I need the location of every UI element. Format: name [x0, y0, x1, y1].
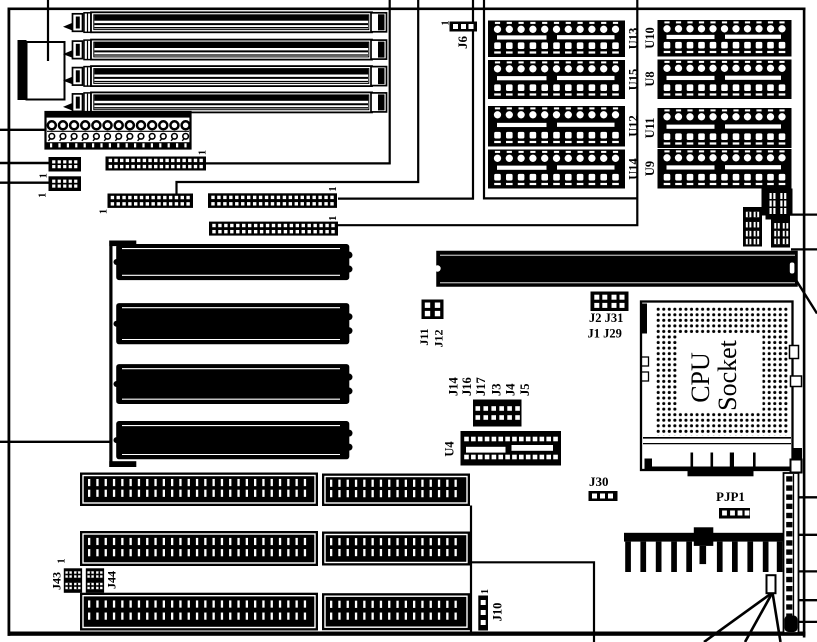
svg-text:J14: J14: [447, 377, 461, 397]
svg-text:1: 1: [38, 173, 49, 178]
svg-text:J12: J12: [432, 330, 446, 348]
svg-text:J43: J43: [50, 572, 64, 590]
svg-text:J30: J30: [589, 474, 609, 489]
svg-text:U8: U8: [643, 71, 657, 86]
svg-text:U9: U9: [643, 161, 657, 176]
svg-text:Socket: Socket: [713, 339, 742, 411]
svg-text:J1 J29: J1 J29: [588, 327, 622, 341]
svg-text:1: 1: [328, 216, 339, 221]
svg-text:U14: U14: [627, 157, 641, 179]
svg-text:J44: J44: [105, 571, 119, 589]
svg-text:U15: U15: [627, 69, 641, 91]
svg-text:U13: U13: [627, 28, 641, 50]
svg-text:J17: J17: [474, 377, 488, 396]
svg-text:U11: U11: [643, 118, 657, 139]
svg-text:J2 J31: J2 J31: [589, 311, 623, 325]
svg-text:J6: J6: [455, 36, 470, 50]
svg-text:U10: U10: [643, 27, 657, 49]
svg-text:J3: J3: [490, 384, 504, 397]
svg-text:U12: U12: [627, 115, 641, 137]
svg-text:1: 1: [441, 21, 452, 26]
svg-text:J16: J16: [460, 377, 474, 396]
svg-text:1: 1: [480, 589, 491, 594]
svg-text:U4: U4: [443, 441, 457, 457]
svg-text:J10: J10: [491, 603, 505, 622]
svg-text:J5: J5: [518, 384, 532, 397]
svg-text:CPU: CPU: [686, 352, 715, 403]
svg-text:1: 1: [328, 187, 339, 192]
svg-text:1: 1: [99, 209, 110, 214]
svg-text:J4: J4: [504, 383, 518, 396]
svg-text:1: 1: [38, 193, 49, 198]
svg-text:PJP1: PJP1: [716, 489, 745, 504]
svg-text:J11: J11: [417, 328, 431, 345]
svg-text:1: 1: [198, 150, 209, 155]
svg-text:1: 1: [57, 559, 68, 564]
